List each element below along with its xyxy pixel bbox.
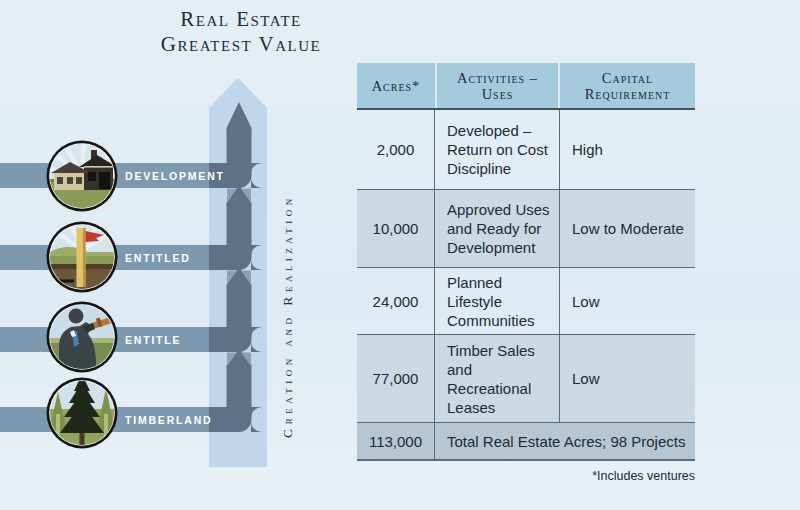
header-activities-uses: Activities – Uses xyxy=(435,63,560,108)
cell-capital: Low xyxy=(560,268,695,334)
cell-acres: 24,000 xyxy=(357,268,435,334)
cell-capital: High xyxy=(560,110,695,189)
band-label-entitle: ENTITLE xyxy=(125,334,181,346)
real-estate-table: Acres* Activities – Uses Capital Require… xyxy=(357,63,695,461)
table-row: 2,000 Developed – Return on Cost Discipl… xyxy=(357,110,695,190)
band-label-entitled: ENTITLED xyxy=(125,252,191,264)
header-acres: Acres* xyxy=(357,63,435,108)
cell-acres: 2,000 xyxy=(357,110,435,189)
cell-acres: 10,000 xyxy=(357,190,435,267)
table-header-row: Acres* Activities – Uses Capital Require… xyxy=(357,63,695,110)
table-row: 24,000 Planned Lifestyle Communities Low xyxy=(357,268,695,335)
cell-acres: 77,000 xyxy=(357,335,435,422)
survey-stake-flag-icon xyxy=(46,222,118,294)
cell-activities: Developed – Return on Cost Discipline xyxy=(435,110,560,189)
axis-label-creation-realization: Creation and Realization xyxy=(280,156,302,476)
cell-capital: Low to Moderate xyxy=(560,190,695,267)
band-label-timberland: TIMBERLAND xyxy=(125,414,212,426)
cell-capital: Low xyxy=(560,335,695,422)
house-development-icon xyxy=(47,138,118,212)
cell-activities: Approved Uses and Ready for Development xyxy=(435,190,560,267)
cell-total-label: Total Real Estate Acres; 98 Projects xyxy=(435,423,695,459)
table-row: 77,000 Timber Sales and Recreational Lea… xyxy=(357,335,695,423)
cell-total-acres: 113,000 xyxy=(357,423,435,459)
footnote: *Includes ventures xyxy=(357,469,695,483)
pine-tree-icon xyxy=(47,374,118,449)
table-row: 10,000 Approved Uses and Ready for Devel… xyxy=(357,190,695,268)
band-label-development: DEVELOPMENT xyxy=(125,170,225,182)
table-total-row: 113,000 Total Real Estate Acres; 98 Proj… xyxy=(357,423,695,461)
header-capital-requirement: Capital Requirement xyxy=(560,63,695,108)
cell-activities: Planned Lifestyle Communities xyxy=(435,268,560,334)
surveyor-telescope-icon xyxy=(47,302,118,374)
cell-activities: Timber Sales and Recreational Leases xyxy=(435,335,560,422)
